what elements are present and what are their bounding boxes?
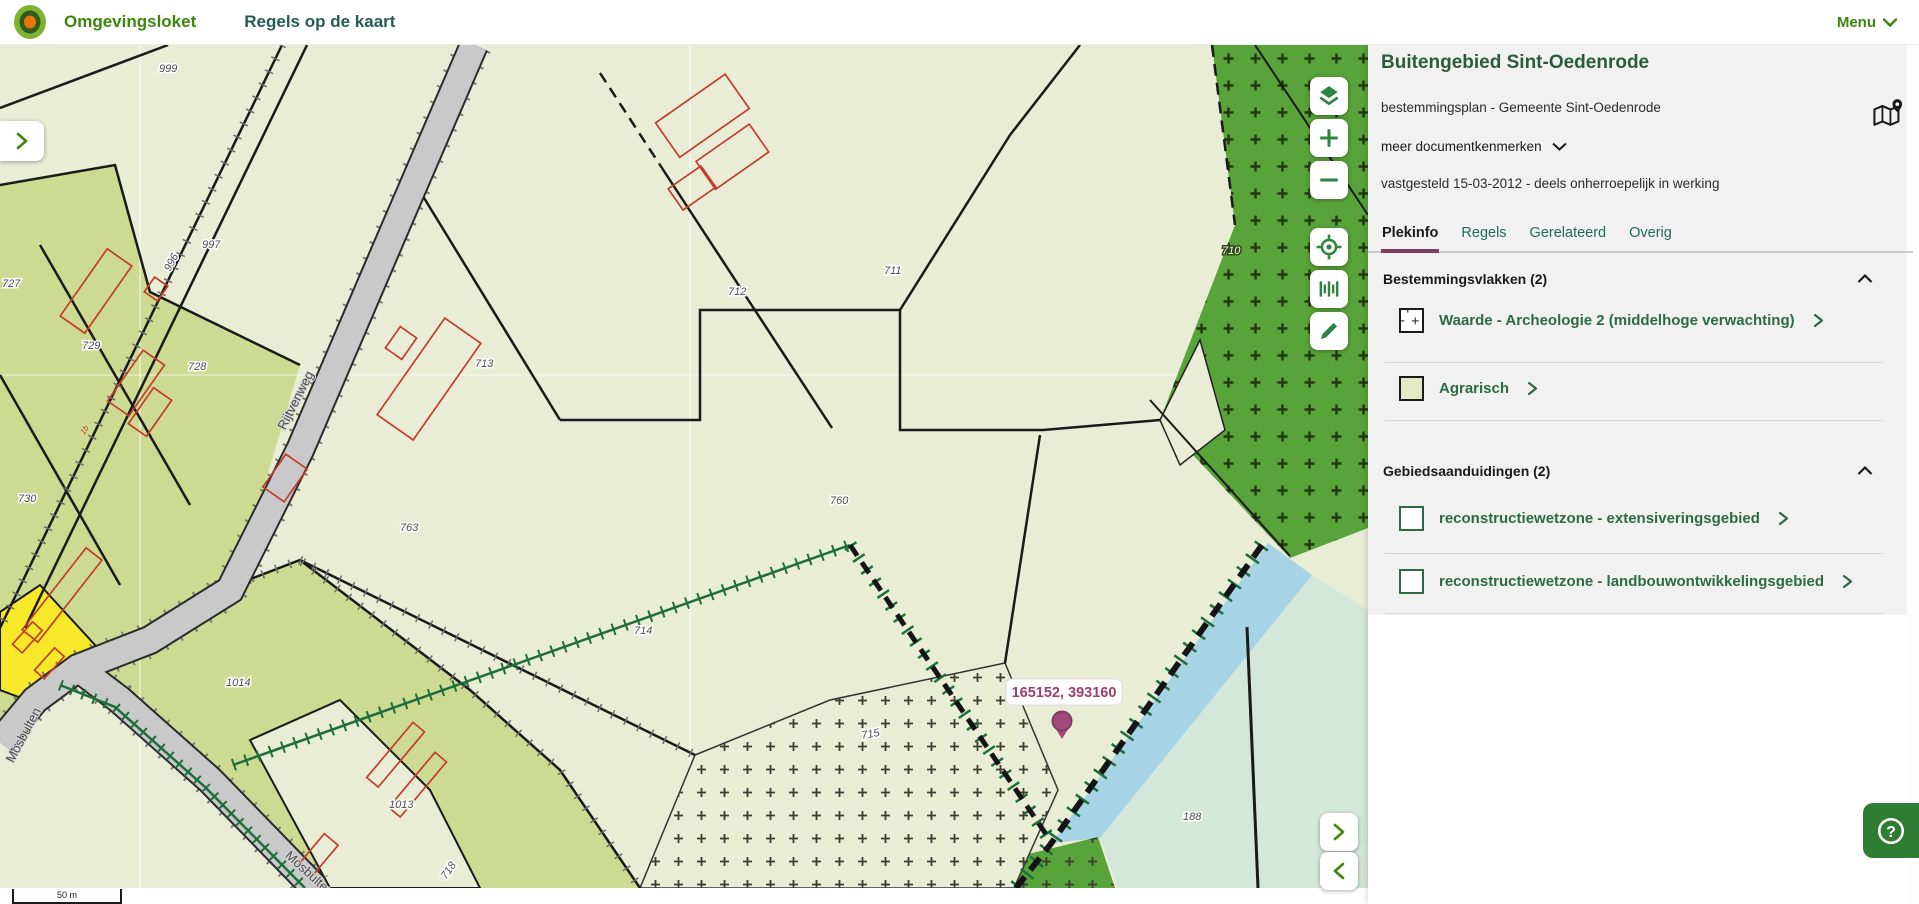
scale-bar: 50 m	[12, 889, 122, 904]
agrarisch-swatch-icon	[1399, 376, 1424, 401]
svg-text:727: 727	[2, 278, 21, 290]
tab-gerelateerd[interactable]: Gerelateerd	[1529, 221, 1608, 253]
zone-outline-swatch-icon	[1399, 506, 1424, 531]
svg-text:999: 999	[159, 63, 177, 75]
menu-label: Menu	[1837, 14, 1876, 31]
svg-text:711: 711	[884, 265, 902, 277]
svg-text:729: 729	[82, 340, 100, 352]
list-item-label: reconstructiewetzone - landbouwontwikkel…	[1439, 573, 1824, 590]
divider	[1385, 613, 1883, 614]
svg-text:763: 763	[400, 522, 419, 534]
ruler-bars-icon	[1317, 277, 1341, 301]
more-document-details-link[interactable]: meer documentkenmerken	[1381, 139, 1567, 154]
list-item-extensiveringsgebied[interactable]: reconstructiewetzone - extensiveringsgeb…	[1399, 506, 1879, 531]
svg-text:728: 728	[188, 361, 207, 373]
plan-title: Buitengebied Sint-Oedenrode	[1381, 52, 1649, 74]
section-gebiedsaanduidingen-collapse-button[interactable]	[1857, 465, 1873, 476]
coordinate-label: 165152, 393160	[1012, 685, 1117, 701]
svg-text:?: ?	[1886, 823, 1896, 840]
panel-expand-button[interactable]	[1320, 813, 1358, 851]
app-window: Omgevingsloket Regels op de kaart Menu	[0, 0, 1919, 904]
map-canvas[interactable]: 999 997 996 727 729 728 730 712 711 713 …	[0, 45, 1368, 888]
pencil-icon	[1317, 319, 1341, 343]
svg-text:1013: 1013	[389, 799, 414, 811]
divider	[1385, 553, 1883, 554]
svg-text:714: 714	[634, 625, 652, 637]
list-item-landbouwontwikkelingsgebied[interactable]: reconstructiewetzone - landbouwontwikkel…	[1399, 569, 1879, 594]
draw-button[interactable]	[1310, 312, 1348, 350]
chevron-left-icon	[1331, 862, 1347, 880]
more-document-details-label: meer documentkenmerken	[1381, 139, 1542, 154]
question-mark-icon: ?	[1875, 815, 1907, 847]
svg-text:713: 713	[475, 358, 494, 370]
expand-left-panel-button[interactable]	[0, 121, 44, 161]
chevron-right-icon	[1526, 381, 1539, 396]
measure-button[interactable]	[1310, 270, 1348, 308]
omgevingsloket-logo-icon	[13, 4, 47, 40]
svg-text:997: 997	[202, 239, 221, 251]
top-header: Omgevingsloket Regels op de kaart Menu	[0, 0, 1919, 45]
locate-me-button[interactable]	[1310, 228, 1348, 266]
plus-icon	[1317, 126, 1341, 150]
detail-panel: Buitengebied Sint-Oedenrode bestemmingsp…	[1368, 45, 1919, 904]
chevron-down-icon	[1552, 142, 1567, 151]
help-button[interactable]: ?	[1863, 803, 1919, 858]
svg-text:730: 730	[18, 493, 37, 505]
list-item-label: Waarde - Archeologie 2 (middelhoge verwa…	[1439, 312, 1795, 329]
tab-regels[interactable]: Regels	[1460, 221, 1507, 253]
panel-tabs: Plekinfo Regels Gerelateerd Overig	[1368, 221, 1913, 253]
archeologie-swatch-icon	[1399, 308, 1424, 333]
svg-text:1014: 1014	[226, 677, 250, 689]
chevron-down-icon	[1883, 18, 1897, 27]
map-document-icon[interactable]	[1871, 99, 1903, 134]
zone-outline-swatch-icon	[1399, 569, 1424, 594]
menu-button[interactable]: Menu	[1837, 14, 1897, 31]
zoom-in-button[interactable]	[1310, 119, 1348, 157]
divider	[1385, 362, 1883, 363]
panel-collapse-button[interactable]	[1320, 852, 1358, 890]
chevron-right-icon	[1812, 313, 1825, 328]
tab-plekinfo[interactable]: Plekinfo	[1381, 221, 1439, 253]
list-item-label: Agrarisch	[1439, 380, 1509, 397]
tab-overig[interactable]: Overig	[1628, 221, 1673, 253]
map-bottom-strip	[0, 888, 1368, 904]
crosshair-icon	[1316, 234, 1342, 260]
page-title: Regels op de kaart	[244, 12, 395, 32]
svg-text:710: 710	[1222, 245, 1241, 257]
svg-text:188: 188	[1183, 811, 1202, 823]
map-container: 999 997 996 727 729 728 730 712 711 713 …	[0, 45, 1368, 888]
chevron-up-icon	[1857, 273, 1873, 284]
brand-name[interactable]: Omgevingsloket	[64, 12, 196, 32]
chevron-right-icon	[1777, 511, 1790, 526]
zoom-out-button[interactable]	[1310, 161, 1348, 199]
list-item-waarde-archeologie[interactable]: Waarde - Archeologie 2 (middelhoge verwa…	[1399, 308, 1879, 333]
plan-status-line: vastgesteld 15-03-2012 - deels onherroep…	[1381, 176, 1719, 191]
panel-scrollbar-track[interactable]	[1907, 45, 1919, 904]
layers-button[interactable]	[1310, 77, 1348, 115]
scale-label: 50 m	[57, 890, 77, 900]
divider	[1385, 420, 1883, 421]
chevron-right-icon	[1841, 574, 1854, 589]
plan-subtitle: bestemmingsplan - Gemeente Sint-Oedenrod…	[1381, 100, 1661, 115]
section-gebiedsaanduidingen-title: Gebiedsaanduidingen (2)	[1383, 463, 1550, 479]
layers-icon	[1317, 84, 1341, 108]
chevron-up-icon	[1857, 465, 1873, 476]
list-item-label: reconstructiewetzone - extensiveringsgeb…	[1439, 510, 1760, 527]
chevron-right-icon	[14, 132, 30, 150]
svg-text:712: 712	[728, 286, 746, 298]
svg-text:760: 760	[830, 495, 849, 507]
section-bestemmingsvlakken-collapse-button[interactable]	[1857, 273, 1873, 284]
minus-icon	[1317, 168, 1341, 192]
chevron-right-icon	[1331, 823, 1347, 841]
list-item-agrarisch[interactable]: Agrarisch	[1399, 376, 1879, 401]
section-bestemmingsvlakken-title: Bestemmingsvlakken (2)	[1383, 271, 1547, 287]
